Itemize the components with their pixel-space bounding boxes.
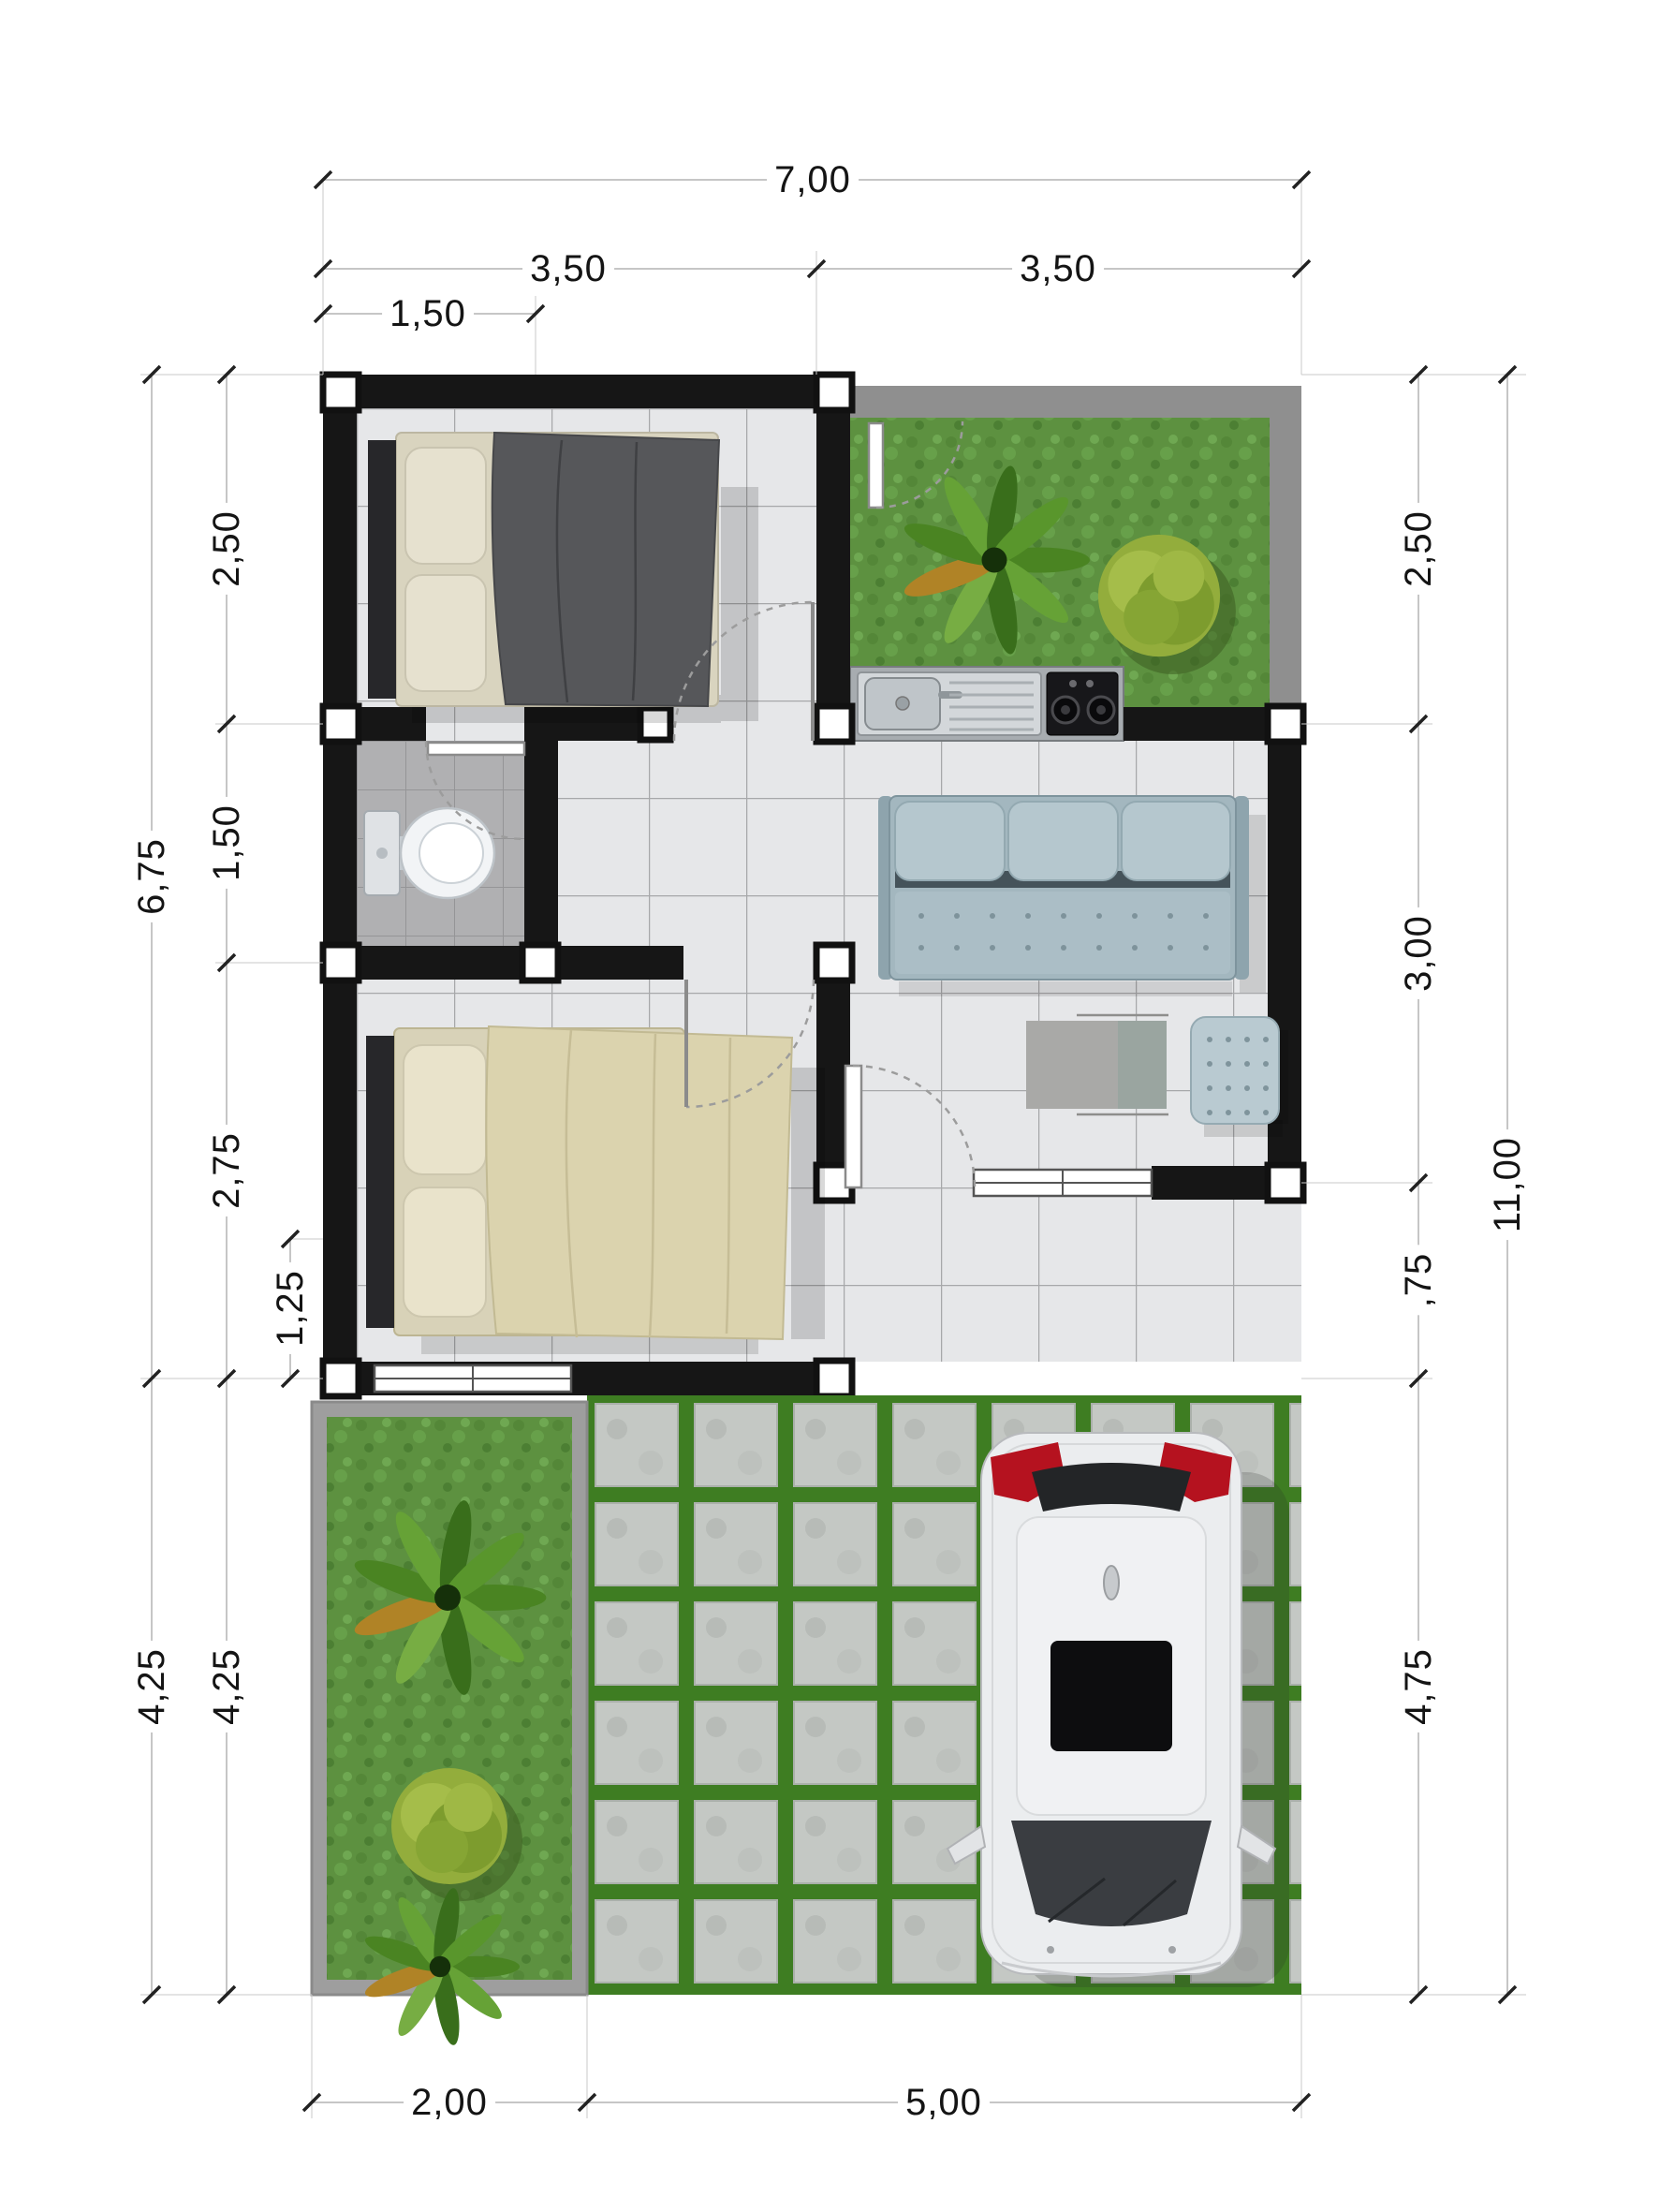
coffee-table-icon xyxy=(1026,1015,1168,1114)
courtyard-fence-right xyxy=(1270,386,1301,707)
wall-courtyard-left xyxy=(816,408,850,707)
bathroom-door-leaf xyxy=(428,743,524,755)
dim-label-yard-depth-inner: 4,25 xyxy=(207,1641,246,1733)
dim-label-living-depth: 3,00 xyxy=(1399,907,1438,999)
dim-label-bedroom1-depth: 2,50 xyxy=(207,503,246,595)
dim-label-total-width: 7,00 xyxy=(767,160,859,199)
bedroom2-bed-icon xyxy=(366,1026,825,1354)
bedroom1-bed-icon xyxy=(368,433,758,723)
dim-label-bathroom-depth: 1,50 xyxy=(207,797,246,889)
dim-label-bedroom2-depth: 2,75 xyxy=(207,1125,246,1217)
dim-label-house-depth: 6,75 xyxy=(132,831,171,922)
dim-label-left-bay: 3,50 xyxy=(522,249,614,288)
dim-label-carport-width: 5,00 xyxy=(898,2083,990,2122)
kitchen-counter xyxy=(850,667,1124,741)
dim-label-total-depth: 11,00 xyxy=(1488,1129,1527,1240)
courtyard-fence-top xyxy=(850,386,1301,418)
dim-label-right-bay: 3,50 xyxy=(1012,249,1104,288)
courtyard-gate-leaf xyxy=(869,423,883,508)
front-door-leaf xyxy=(845,1066,861,1187)
wall-top xyxy=(323,375,854,408)
kitchen-courtyard xyxy=(850,386,1301,707)
sofa-icon xyxy=(878,796,1266,996)
dim-label-window-offset: 1,25 xyxy=(271,1262,310,1354)
car-icon xyxy=(948,1433,1289,1987)
floor-plan-canvas: 7,00 3,50 3,50 1,50 6,75 2,50 1,50 2,75 … xyxy=(0,0,1660,2212)
ottoman-icon xyxy=(1191,1017,1288,1137)
dim-label-yard-depth-outer: 4,25 xyxy=(132,1641,171,1733)
dim-label-courtyard-depth: 2,50 xyxy=(1399,503,1438,595)
dim-label-garden-width: 2,00 xyxy=(404,2083,495,2122)
floor-plan-drawing xyxy=(0,0,1660,2212)
toilet-icon xyxy=(364,808,494,898)
dim-label-bath-width: 1,50 xyxy=(382,294,474,333)
wall-left xyxy=(323,375,357,1395)
dim-label-carport-depth: 4,75 xyxy=(1399,1641,1438,1733)
dim-label-porch-depth: ,75 xyxy=(1399,1246,1438,1316)
